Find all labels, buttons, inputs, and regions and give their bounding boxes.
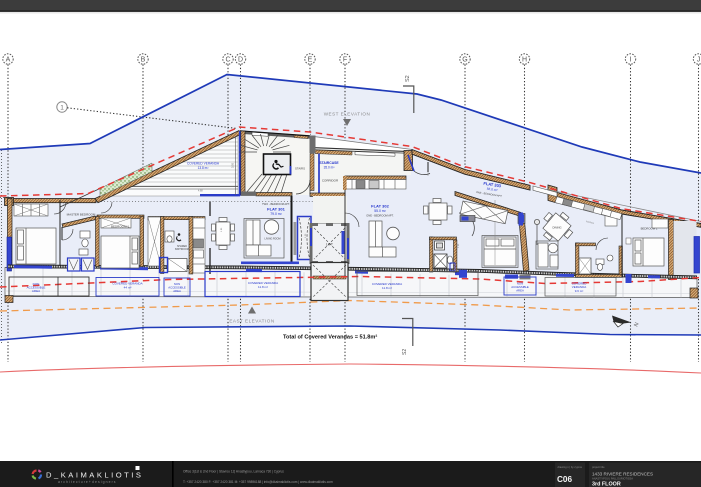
svg-text:S2: S2 — [402, 349, 408, 355]
svg-text:FLAT 302: FLAT 302 — [371, 204, 389, 209]
svg-text:ONE - BEDROOM APT.: ONE - BEDROOM APT. — [366, 214, 394, 218]
svg-text:TWO - BEDROOM APT.: TWO - BEDROOM APT. — [262, 202, 290, 206]
svg-text:79.0 m²: 79.0 m² — [270, 212, 282, 216]
svg-text:D: D — [238, 57, 243, 64]
svg-text:A: A — [6, 57, 11, 64]
svg-text:MASTER BEDROOM: MASTER BEDROOM — [67, 213, 96, 217]
svg-text:Total of Covered Verandas = 51: Total of Covered Verandas = 51.8m² — [283, 334, 377, 341]
svg-text:DINING: DINING — [552, 226, 561, 230]
svg-text:11.8 m²: 11.8 m² — [382, 286, 392, 290]
svg-text:project title: project title — [592, 465, 605, 469]
svg-text:F: F — [343, 57, 347, 64]
svg-text:STAIRS: STAIRS — [295, 167, 305, 171]
svg-text:COVERED VERANDA: COVERED VERANDA — [187, 162, 220, 166]
svg-text:STAIRCASE: STAIRCASE — [319, 161, 339, 165]
svg-text:BEDROOM 1: BEDROOM 1 — [111, 225, 129, 229]
svg-text:BATHROOM: BATHROOM — [175, 248, 189, 251]
svg-text:I: I — [630, 57, 632, 64]
svg-text:ANASTIYPOU | PALLOURIOTISSA: ANASTIYPOU | PALLOURIOTISSA — [592, 476, 633, 480]
svg-text:55.0 m²: 55.0 m² — [374, 209, 386, 213]
svg-text:35.0 m²: 35.0 m² — [324, 166, 335, 170]
svg-text:9.6 m²: 9.6 m² — [575, 289, 584, 293]
svg-text:C06: C06 — [557, 475, 572, 484]
svg-text:H: H — [522, 57, 527, 64]
svg-text:drawing n | by cyprus: drawing n | by cyprus — [558, 465, 583, 469]
svg-text:B: B — [141, 57, 146, 64]
svg-text:D_KAIMAKLIOTIS: D_KAIMAKLIOTIS — [46, 470, 143, 479]
svg-text:1433 RIVIERE RESIDENCES: 1433 RIVIERE RESIDENCES — [592, 472, 653, 477]
svg-text:architecture+designers: architecture+designers — [58, 480, 117, 484]
svg-text:E: E — [308, 57, 313, 64]
svg-text:13.8 m²: 13.8 m² — [198, 166, 209, 170]
svg-text:LIFT: LIFT — [326, 243, 333, 247]
svg-text:11.8 m²: 11.8 m² — [258, 285, 268, 289]
svg-text:LIVING ROOM: LIVING ROOM — [265, 238, 281, 241]
svg-text:3.05: 3.05 — [231, 162, 235, 168]
svg-text:AREA: AREA — [516, 288, 524, 292]
svg-text:3rd FLOOR: 3rd FLOOR — [592, 481, 621, 487]
svg-text:AREA: AREA — [32, 289, 40, 293]
svg-text:J: J — [697, 57, 701, 64]
svg-text:T: +357 2420 380 F: +357 242: T: +357 2420 380 F: +357 2420 381 M: +35… — [183, 480, 333, 484]
svg-text:G: G — [462, 57, 467, 64]
svg-text:CORRIDOR: CORRIDOR — [322, 179, 339, 183]
svg-text:Office 3|1st & 2nd Floor | Sta: Office 3|1st & 2nd Floor | Stavrou 12| A… — [183, 470, 284, 474]
svg-text:EAST ELEVATION: EAST ELEVATION — [229, 319, 274, 324]
svg-text:4.88: 4.88 — [198, 190, 203, 193]
svg-text:C: C — [225, 57, 230, 64]
svg-text:S2: S2 — [405, 75, 411, 82]
svg-text:FLAT 301: FLAT 301 — [267, 207, 285, 212]
svg-text:44 m²: 44 m² — [124, 286, 132, 290]
svg-text:AREA: AREA — [173, 289, 181, 293]
svg-text:WEST ELEVATION: WEST ELEVATION — [324, 112, 371, 117]
svg-text:1: 1 — [60, 104, 64, 111]
